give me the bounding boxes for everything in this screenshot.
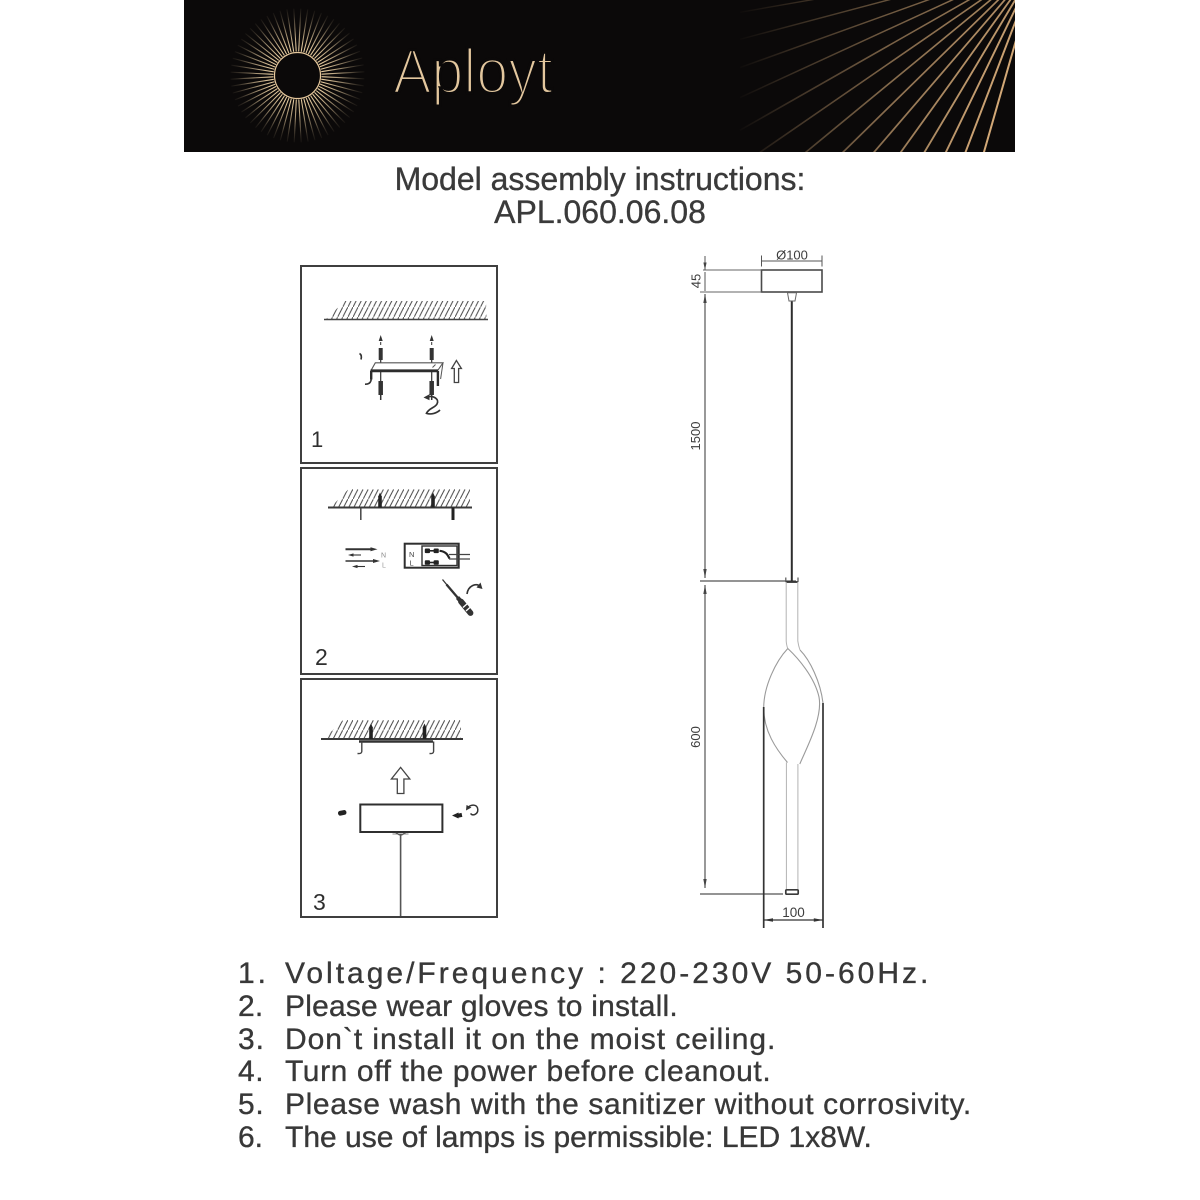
svg-text:N: N <box>381 553 386 560</box>
svg-text:L: L <box>410 559 414 568</box>
svg-text:600: 600 <box>688 726 703 748</box>
svg-text:2: 2 <box>315 644 328 670</box>
svg-text:100: 100 <box>782 905 805 920</box>
svg-text:Ø100: Ø100 <box>776 248 808 263</box>
svg-text:1: 1 <box>311 427 323 452</box>
svg-text:45: 45 <box>689 274 704 288</box>
svg-text:3: 3 <box>313 889 326 915</box>
svg-text:Aployt: Aployt <box>393 37 553 107</box>
svg-text:1500: 1500 <box>688 422 703 451</box>
svg-text:L: L <box>382 563 386 570</box>
